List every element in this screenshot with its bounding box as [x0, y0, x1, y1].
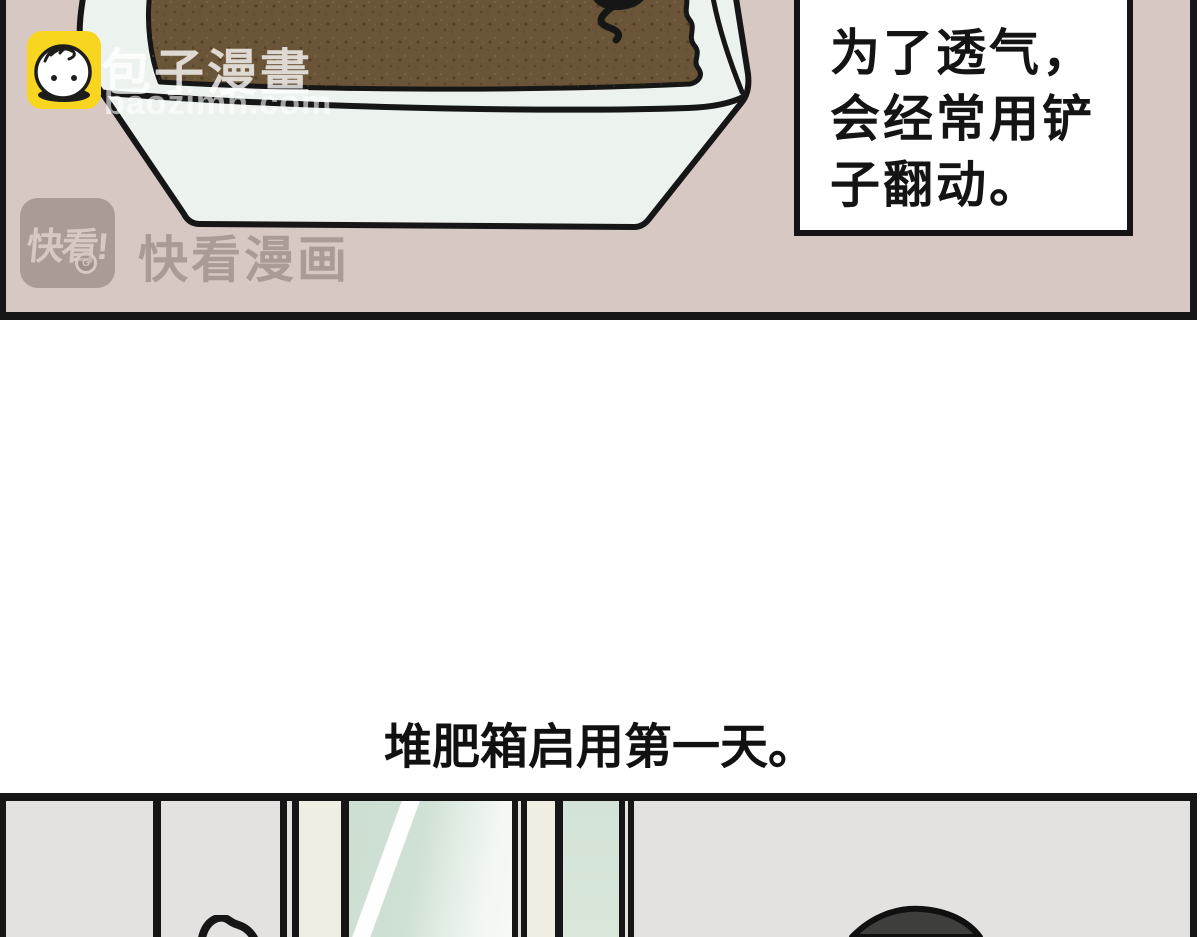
window-glass-right: [563, 801, 619, 937]
narration-text: 堆肥箱启用第一天。: [0, 707, 1200, 777]
comic-page: { "comic": { "panel1": { "caption_lines"…: [0, 0, 1200, 937]
panel1-border-left: [0, 0, 6, 320]
window-frame-line: [555, 801, 563, 937]
glass-reflection-streak: [349, 801, 424, 937]
window-frame-line: [280, 801, 287, 937]
window-trim: [527, 801, 555, 937]
wall-line: [153, 801, 161, 937]
baozi-domain-watermark: baozimh.com: [104, 84, 332, 123]
baozi-bun-logo-icon: [27, 31, 101, 109]
cat-tail-curl: [196, 915, 262, 937]
caption-box: 为了透气， 会经常用铲 子翻动。: [794, 0, 1133, 236]
window-frame-line: [628, 801, 634, 937]
window-trim: [299, 801, 341, 937]
kuaikan-logo: 快看!: [20, 198, 115, 288]
kuaikan-watermark-text: 快看漫画: [138, 220, 350, 292]
cat-head: [848, 903, 984, 937]
caption-line-1: 为了透气，: [830, 20, 1127, 86]
comic-panel-bottom: [0, 793, 1197, 937]
window-frame-line: [341, 801, 349, 937]
window-frame-line: [619, 801, 625, 937]
panel1-border-bottom: [0, 312, 1197, 320]
panel1-border-right: [1190, 0, 1197, 320]
window-frame-line: [292, 801, 299, 937]
caption-line-3: 子翻动。: [830, 152, 1127, 218]
caption-line-2: 会经常用铲: [830, 86, 1127, 152]
kuaikan-logo-text: 快看!: [25, 216, 110, 270]
kuaikan-g-badge: G: [75, 252, 97, 274]
window-glass-left: [349, 801, 512, 937]
comic-panel-top: 为了透气， 会经常用铲 子翻动。 包子漫畫 baozimh.com 快看! G …: [0, 0, 1197, 320]
window-frame-line: [512, 801, 518, 937]
